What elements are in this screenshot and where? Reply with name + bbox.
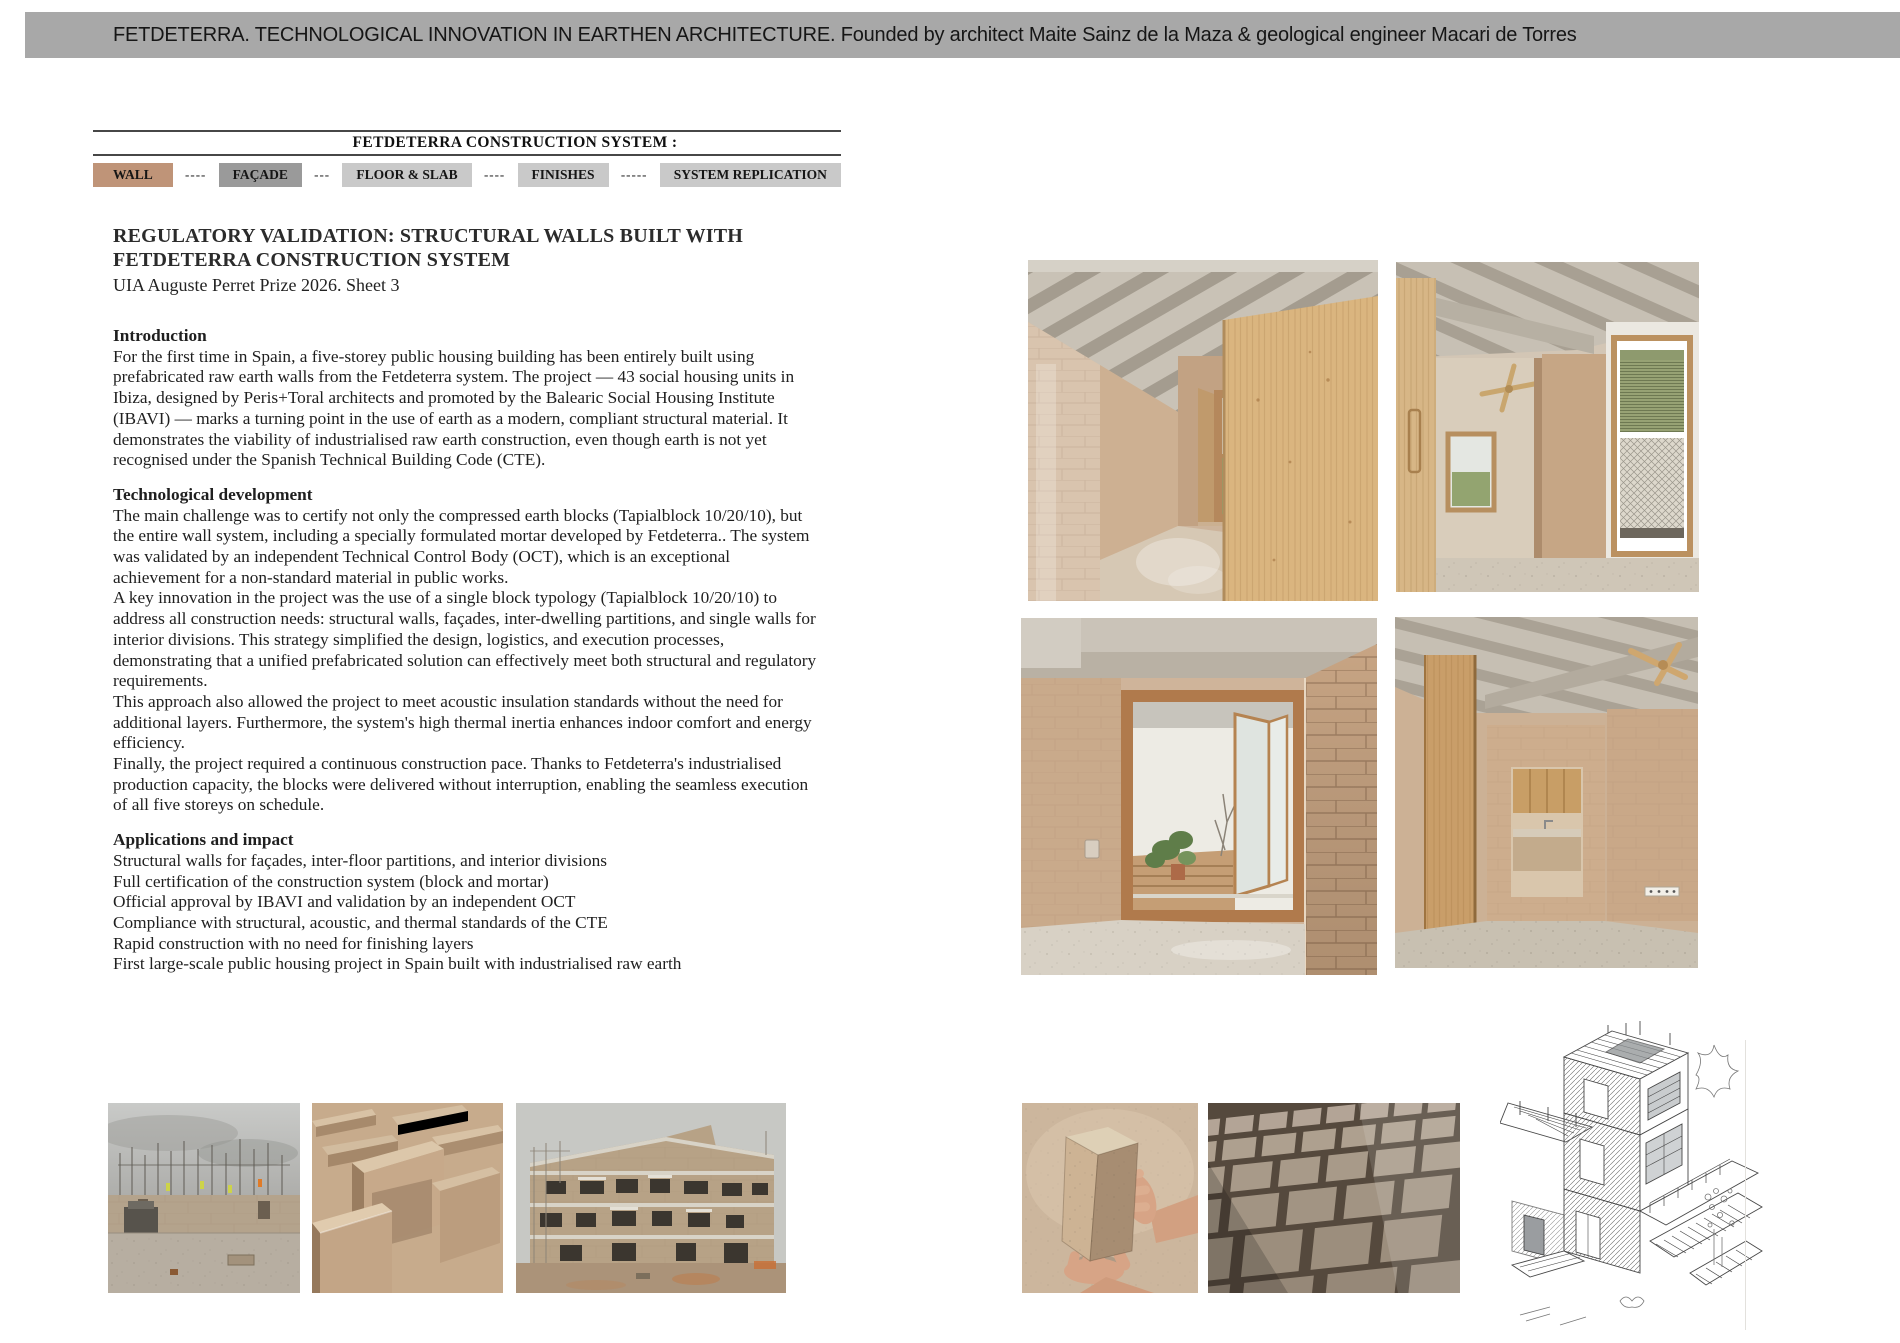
drawing-axonometric xyxy=(1500,1015,1765,1343)
headline-block: REGULATORY VALIDATION: STRUCTURAL WALLS … xyxy=(113,224,813,296)
paragraph: This approach also allowed the project t… xyxy=(113,692,821,754)
tab-floor-slab[interactable]: FLOOR & SLAB xyxy=(342,163,471,187)
tab-separator: ---- xyxy=(185,167,206,183)
tab-finishes[interactable]: FINISHES xyxy=(518,163,609,187)
photo-construction-walls xyxy=(312,1103,503,1293)
page-subtitle: UIA Auguste Perret Prize 2026. Sheet 3 xyxy=(113,275,813,296)
paragraph: The main challenge was to certify not on… xyxy=(113,506,821,589)
body-text-column: Introduction For the first time in Spain… xyxy=(113,317,821,975)
sheet-page: FETDETERRA. TECHNOLOGICAL INNOVATION IN … xyxy=(0,0,1900,1343)
tab-separator: ----- xyxy=(621,167,648,183)
tab-wall[interactable]: WALL xyxy=(93,163,173,187)
list-line: Official approval by IBAVI and validatio… xyxy=(113,892,821,913)
section-technological-development: Technological development The main chall… xyxy=(113,485,821,816)
list-line: Rapid construction with no need for fini… xyxy=(113,934,821,955)
construction-system-nav: FETDETERRA CONSTRUCTION SYSTEM : WALL --… xyxy=(93,130,841,187)
section-heading: Applications and impact xyxy=(113,830,821,851)
photo-earth-blocks-grid xyxy=(1208,1103,1460,1293)
photo-earth-block-hand xyxy=(1022,1103,1198,1293)
list-line: Full certification of the construction s… xyxy=(113,872,821,893)
photo-construction-facade xyxy=(516,1103,786,1293)
section-applications-impact: Applications and impact Structural walls… xyxy=(113,830,821,975)
section-heading: Technological development xyxy=(113,485,821,506)
paragraph: A key innovation in the project was the … xyxy=(113,588,821,692)
divider-line xyxy=(1745,1040,1746,1330)
page-title: REGULATORY VALIDATION: STRUCTURAL WALLS … xyxy=(113,224,773,272)
tab-system-replication[interactable]: SYSTEM REPLICATION xyxy=(660,163,841,187)
system-tabs: WALL ---- FAÇADE --- FLOOR & SLAB ---- F… xyxy=(93,163,841,187)
nav-rule-bottom xyxy=(93,154,841,156)
tab-separator: ---- xyxy=(484,167,505,183)
banner-title: FETDETERRA. TECHNOLOGICAL INNOVATION IN … xyxy=(113,24,1577,47)
nav-title: FETDETERRA CONSTRUCTION SYSTEM : xyxy=(93,132,841,154)
photo-construction-site xyxy=(108,1103,300,1293)
list-line: First large-scale public housing project… xyxy=(113,954,821,975)
paragraph: Finally, the project required a continuo… xyxy=(113,754,821,816)
photo-interior-fan-window xyxy=(1396,262,1699,592)
photo-interior-kitchen xyxy=(1395,617,1698,968)
tab-separator: --- xyxy=(314,167,330,183)
top-banner: FETDETERRA. TECHNOLOGICAL INNOVATION IN … xyxy=(25,12,1900,58)
photo-interior-courtyard-door xyxy=(1021,618,1377,975)
paragraph: For the first time in Spain, a five-stor… xyxy=(113,347,821,471)
section-heading: Introduction xyxy=(113,326,821,347)
photo-interior-hallway xyxy=(1028,260,1378,601)
section-introduction: Introduction For the first time in Spain… xyxy=(113,326,821,471)
list-line: Compliance with structural, acoustic, an… xyxy=(113,913,821,934)
list-line: Structural walls for façades, inter-floo… xyxy=(113,851,821,872)
tab-facade[interactable]: FAÇADE xyxy=(219,163,302,187)
